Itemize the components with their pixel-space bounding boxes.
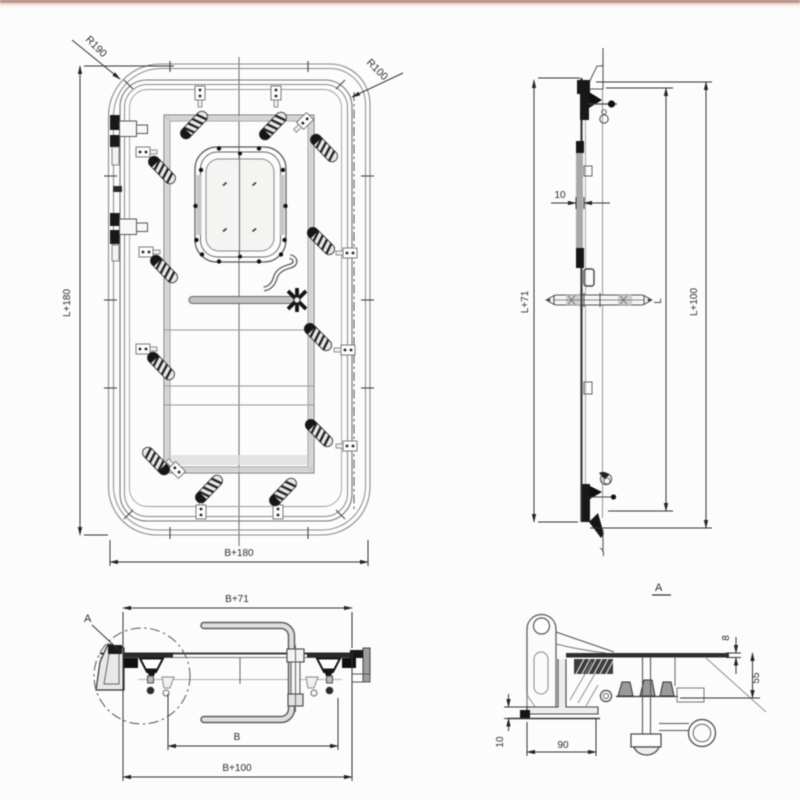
svg-text:A: A xyxy=(655,582,663,594)
svg-text:10: 10 xyxy=(495,736,506,748)
svg-text:10: 10 xyxy=(554,190,566,201)
svg-text:B+100: B+100 xyxy=(222,763,252,774)
svg-text:90: 90 xyxy=(557,740,569,751)
svg-text:B+180: B+180 xyxy=(224,548,254,559)
svg-text:L+71: L+71 xyxy=(520,290,531,313)
svg-text:B+71: B+71 xyxy=(225,594,249,605)
svg-text:L: L xyxy=(653,298,664,304)
svg-text:8: 8 xyxy=(721,635,732,641)
svg-text:L+180: L+180 xyxy=(62,289,73,318)
svg-text:55: 55 xyxy=(751,672,762,684)
svg-text:A: A xyxy=(84,613,92,625)
svg-text:L+100: L+100 xyxy=(689,288,700,317)
svg-text:B: B xyxy=(234,732,241,743)
